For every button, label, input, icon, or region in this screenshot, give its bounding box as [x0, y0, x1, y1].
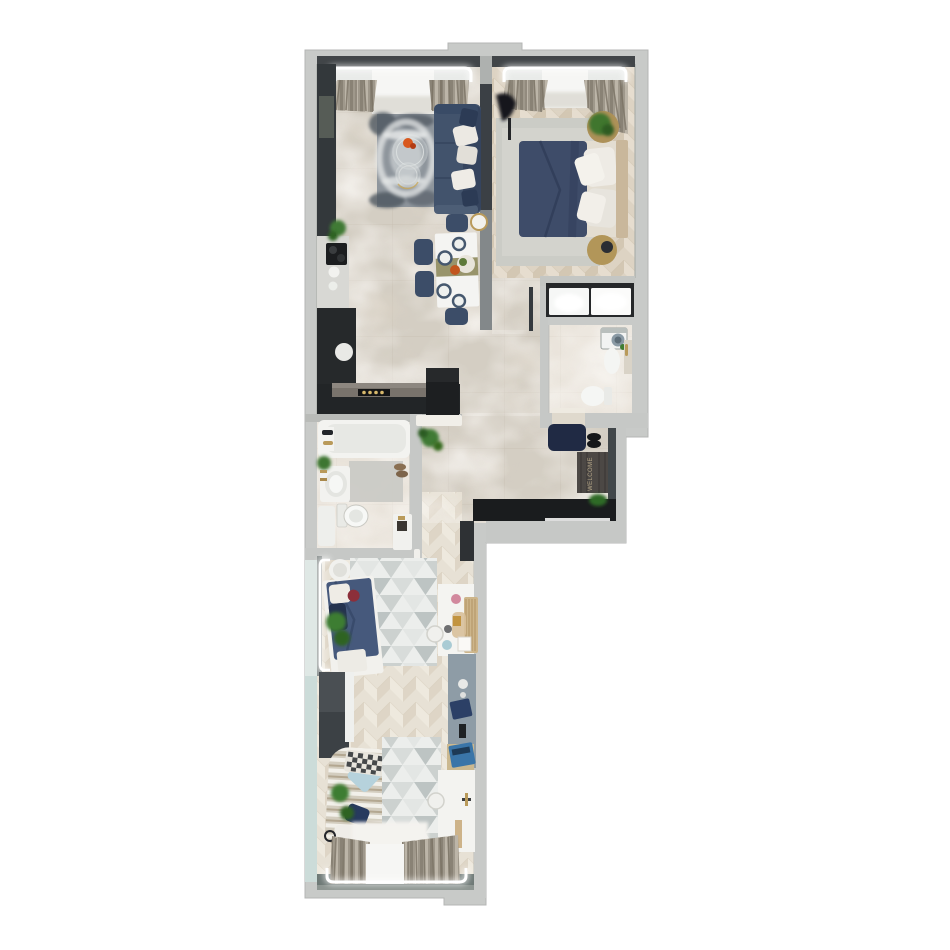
- svg-text:WELCOME: WELCOME: [588, 457, 594, 491]
